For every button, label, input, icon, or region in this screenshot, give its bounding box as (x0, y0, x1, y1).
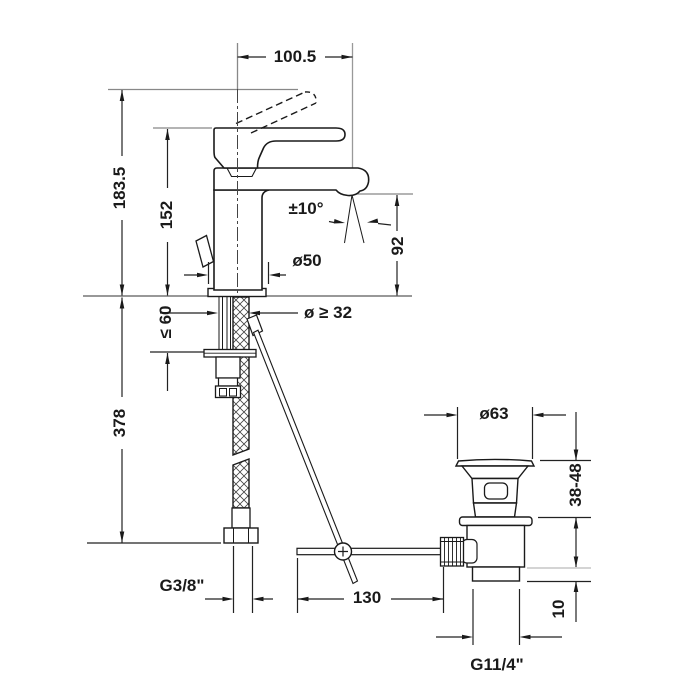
technical-drawing-faucet: 100.5 183.5 152 ±10° 92 ø50 ø ≥ 32 ≤ 60 … (0, 0, 700, 700)
dim-swivel-angle: ±10° (276, 199, 336, 219)
ball-joint (335, 543, 352, 560)
lever-handle (214, 128, 345, 168)
threaded-studs (219, 297, 231, 350)
dim-spout-height: 92 (388, 201, 408, 291)
hose-hex-nut (224, 528, 258, 543)
dim-waste-flange-dia: ø63 (464, 404, 524, 424)
dim-spout-reach: 100.5 (265, 47, 325, 67)
pull-rod-knob (196, 236, 214, 268)
waste-flange (456, 459, 534, 466)
dim-hole-diameter: ø ≥ 32 (293, 303, 363, 323)
lever-raised-dashed (236, 92, 316, 133)
dim-hose-length: 378 (110, 378, 130, 468)
dim-max-thickness: ≤ 60 (156, 277, 176, 367)
dim-supply-thread: G3/8" (147, 576, 217, 596)
locking-ring (460, 517, 533, 526)
horizontal-rod (297, 548, 443, 554)
dim-fitting-height: 152 (157, 170, 177, 260)
dim-rod-offset: 130 (345, 588, 389, 608)
dim-base-diameter: ø50 (279, 251, 335, 271)
body-column (214, 190, 269, 290)
dim-tailpiece-length: 10 (549, 564, 569, 654)
dim-overall-height: 183.5 (110, 143, 130, 233)
dim-basin-thickness: 38-48 (566, 440, 586, 530)
dim-waste-thread: G11/4" (457, 655, 537, 675)
overflow-slot (485, 483, 508, 499)
pop-up-waste (441, 459, 535, 581)
swivel-lines (345, 195, 365, 243)
waste-tailpiece (473, 567, 520, 581)
